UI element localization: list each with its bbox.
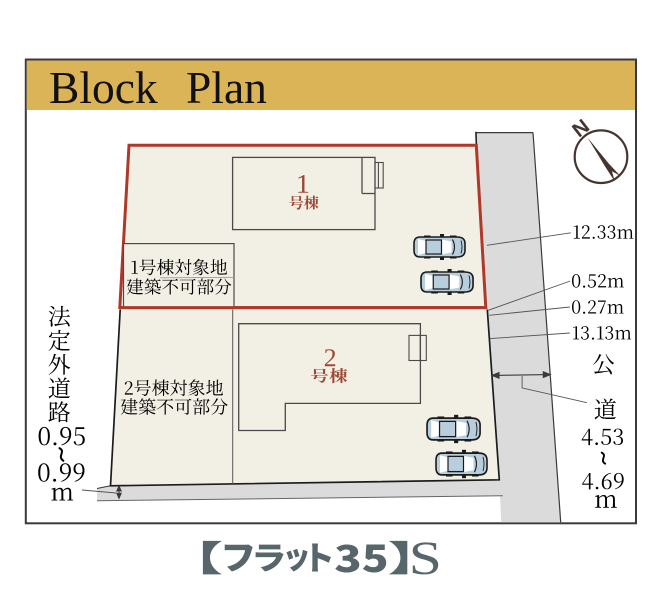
svg-text:Block: Block	[49, 62, 158, 113]
svg-text:Plan: Plan	[186, 62, 267, 113]
